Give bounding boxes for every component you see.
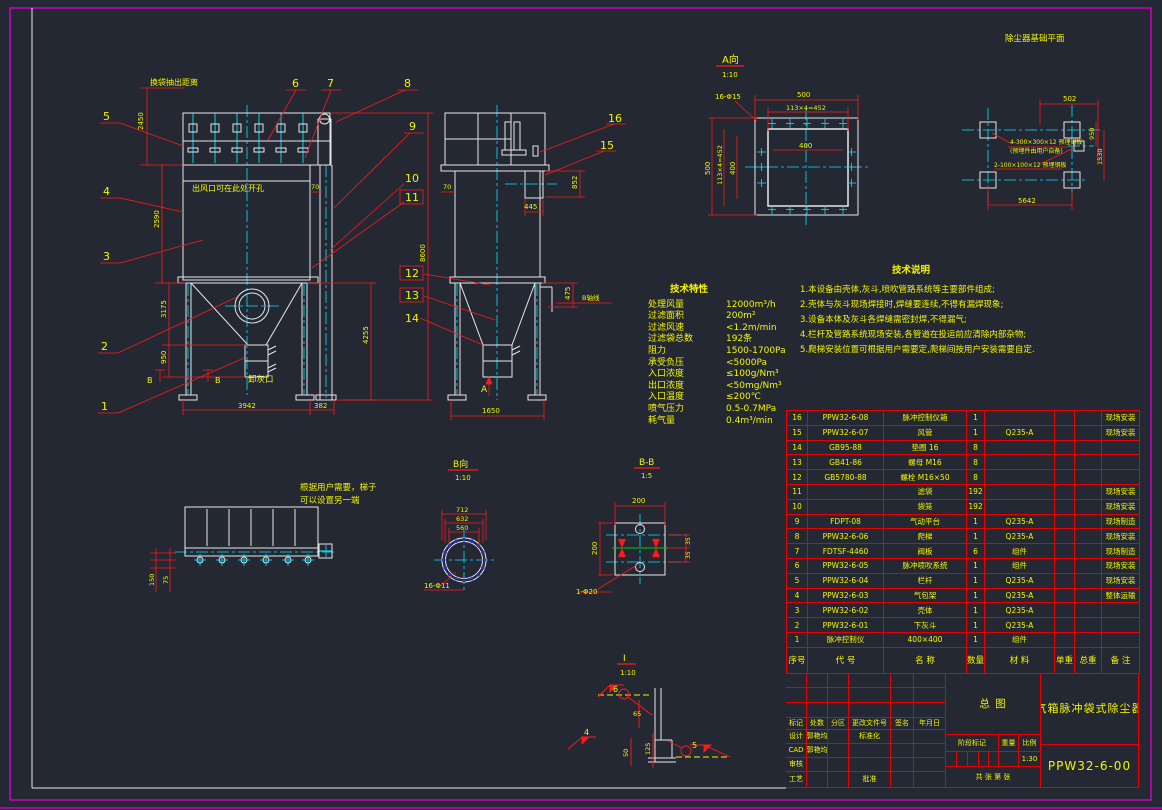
title-block-cell — [807, 703, 828, 718]
bom-cell — [1102, 633, 1140, 648]
bom-cell — [1055, 515, 1075, 530]
bom-cell: 风管 — [884, 426, 967, 441]
side-view — [441, 113, 552, 400]
bom-cell: 9 — [787, 515, 808, 530]
bom-cell — [1102, 455, 1140, 470]
title-block-cell — [828, 744, 849, 758]
bom-cell: 13 — [787, 455, 808, 470]
title-block-stage-box — [957, 752, 968, 767]
title-block-cell — [891, 688, 914, 703]
bom-cell: 1 — [967, 574, 985, 589]
balloon-13: 13 — [405, 289, 419, 302]
weld-scale: 1:10 — [620, 669, 636, 677]
title-block-cell — [914, 730, 946, 744]
bom-cell: 现场安装 — [1102, 485, 1140, 500]
dim-gap-front: 70 — [311, 183, 319, 191]
title-block-cell — [891, 673, 914, 688]
bom-cell: 脉冲喷吹系统 — [884, 559, 967, 574]
spec-value: 200m² — [726, 311, 756, 323]
title-block-scale-label: 比例 — [1019, 735, 1041, 752]
spec-label: 入口温度 — [648, 392, 726, 404]
bom-cell — [1055, 455, 1075, 470]
spec-value: <50mg/Nm³ — [726, 381, 782, 393]
title-block-stage-box — [989, 752, 999, 767]
detail-a-title: A向 — [722, 53, 739, 66]
bom-header-cell: 备 注 — [1102, 648, 1140, 674]
bom-cell — [1102, 603, 1140, 618]
bom-cell — [1055, 603, 1075, 618]
bom-cell — [985, 485, 1055, 500]
plate-scale: 1:5 — [641, 472, 652, 480]
bom-cell: 组件 — [985, 559, 1055, 574]
bom-cell — [1055, 574, 1075, 589]
title-block-cell — [849, 673, 891, 688]
bom-cell: Q235-A — [985, 618, 1055, 633]
bom-cell — [1075, 470, 1102, 485]
bom-row: 7FDTSF-4460阀板6组件现场制造 — [787, 544, 1140, 559]
bom-header-row: 序号代 号名 称数量材 料单重总重备 注 — [787, 648, 1140, 674]
bom-cell — [1055, 544, 1075, 559]
bom-cell: 400×400 — [884, 633, 967, 648]
foundation-note1: 4-300×300×12 预埋钢板 — [1010, 138, 1082, 146]
bom-cell: 整体运输 — [1102, 589, 1140, 604]
bom-cell: 脉冲控制仪 — [808, 633, 884, 648]
bom-row: 3PPW32-6-02壳体1Q235-A — [787, 603, 1140, 618]
bom-table: 16PPW32-6-08脉冲控制仪箱1现场安装15PPW32-6-07风管1Q2… — [786, 410, 1140, 674]
bom-row: 12GB5780-88螺栓 M16×508 — [787, 470, 1140, 485]
spec-label: 耗气量 — [648, 416, 726, 428]
dim-discharge: 950 — [160, 351, 168, 364]
title-block-cell — [849, 744, 891, 758]
bom-cell: 现场安装 — [1102, 529, 1140, 544]
detail-a-view — [755, 118, 858, 215]
section-mark-b1: B — [147, 376, 153, 385]
bom-cell — [1075, 441, 1102, 456]
foundation-950: 950 — [1088, 128, 1096, 140]
bom-cell — [1055, 633, 1075, 648]
title-block-weight-box — [999, 752, 1019, 767]
spec-value: 0.5-0.7MPa — [726, 404, 776, 416]
foundation-502: 502 — [1063, 95, 1076, 103]
bom-cell — [1075, 411, 1102, 426]
spec-label: 喷气压力 — [648, 404, 726, 416]
bom-cell — [1055, 485, 1075, 500]
bom-cell: 1 — [967, 529, 985, 544]
title-block-sheet-note: 共 张 第 张 — [946, 767, 1041, 788]
bom-cell — [1075, 574, 1102, 589]
bom-cell: 4 — [787, 589, 808, 604]
bom-cell: 1 — [967, 633, 985, 648]
title-block-stage-box — [968, 752, 979, 767]
bom-cell: 组件 — [985, 633, 1055, 648]
balloon-9: 9 — [409, 120, 416, 133]
weld-m6: 6 — [613, 685, 618, 694]
tech-note-line: 5.爬梯安装位置可根据用户需要定,爬梯间按用户安装需要自定. — [800, 343, 1145, 358]
bom-cell: 10 — [787, 500, 808, 515]
balloon-15: 15 — [600, 139, 614, 152]
bom-cell: 6 — [787, 559, 808, 574]
detail-a-scale: 1:10 — [722, 71, 738, 79]
tech-note-line: 2.壳体与灰斗现场焊接时,焊缝要连续,不得有漏焊现象; — [800, 298, 1145, 313]
spec-row: 承受负压<5000Pa — [648, 358, 863, 370]
dim-body: 2590 — [153, 210, 161, 228]
foundation-1530: 1530 — [1096, 148, 1104, 165]
title-block-cell: 处数 — [807, 718, 828, 730]
spec-row: 入口浓度≤100g/Nm³ — [648, 369, 863, 381]
bom-cell: 2 — [787, 618, 808, 633]
bom-cell: GB95-88 — [808, 441, 884, 456]
side-axis-note: B轴线 — [582, 293, 600, 302]
title-block-cell: 标记 — [786, 718, 807, 730]
spec-value: 1500-1700Pa — [726, 346, 786, 358]
detail-a-bolts — [757, 119, 856, 214]
spec-label: 过滤风速 — [648, 323, 726, 335]
bom-cell: PPW32-6-05 — [808, 559, 884, 574]
weld-title: I — [623, 654, 626, 664]
bom-row: 15PPW32-6-07风管1Q235-A现场安装 — [787, 426, 1140, 441]
title-block-weight-label: 重量 — [999, 735, 1019, 752]
bom-cell — [1055, 470, 1075, 485]
title-block-cell — [914, 772, 946, 788]
bom-cell — [808, 500, 884, 515]
title-block-cell — [807, 688, 828, 703]
bom-cell: 8 — [967, 470, 985, 485]
bom-cell: 8 — [787, 529, 808, 544]
balloon-16: 16 — [608, 112, 622, 125]
bom-cell — [1075, 544, 1102, 559]
bom-cell: PPW32-6-02 — [808, 603, 884, 618]
title-block-cell — [849, 758, 891, 772]
spec-label: 过滤袋总数 — [648, 334, 726, 346]
plate-hole: 1-Φ20 — [576, 588, 597, 596]
bom-cell: Q235-A — [985, 603, 1055, 618]
bom-cell: PPW32-6-03 — [808, 589, 884, 604]
bom-cell: 垫圈 16 — [884, 441, 967, 456]
bom-cell: 6 — [967, 544, 985, 559]
bom-cell — [985, 455, 1055, 470]
bom-header-cell: 序号 — [787, 648, 808, 674]
title-block-cell — [828, 730, 849, 744]
spec-label: 过滤面积 — [648, 311, 726, 323]
weld-m5: 5 — [692, 741, 697, 750]
bom-header-cell: 名 称 — [884, 648, 967, 674]
title-block-cell — [807, 673, 828, 688]
foundation-5642: 5642 — [1018, 197, 1036, 205]
plate-s1: 35 — [685, 537, 692, 545]
foundation-note3: 2-100×100×12 预埋钢板 — [994, 161, 1066, 169]
front-outlet-note: 出风口可在此处开孔 — [192, 183, 264, 193]
bom-cell — [1102, 618, 1140, 633]
bom-cell: 螺栓 M16×50 — [884, 470, 967, 485]
bom-cell: 现场制造 — [1102, 515, 1140, 530]
bom-cell: 11 — [787, 485, 808, 500]
bom-cell: 1 — [967, 411, 985, 426]
weld-125: 125 — [644, 743, 652, 755]
bom-cell — [1075, 455, 1102, 470]
plan-note1: 根据用户需要，梯子 — [300, 482, 377, 493]
balloon-7: 7 — [327, 77, 334, 90]
detail-a-h: 500 — [704, 162, 712, 175]
bom-cell: 气包架 — [884, 589, 967, 604]
plate-title: B-B — [639, 458, 654, 468]
bom-cell: 14 — [787, 441, 808, 456]
front-view — [178, 113, 336, 400]
title-block-cell — [914, 703, 946, 718]
bom-cell — [1075, 485, 1102, 500]
bom-cell: 现场安装 — [1102, 411, 1140, 426]
cad-sheet: 换袋抽出距离 出风口可在此处开孔 卸灰口 2450 2590 3175 950 … — [0, 0, 1162, 810]
bom-cell: 组件 — [985, 544, 1055, 559]
bom-row: 4PPW32-6-03气包架1Q235-A整体运输 — [787, 589, 1140, 604]
bom-cell: 15 — [787, 426, 808, 441]
title-block-cell — [786, 673, 807, 688]
title-block-cell — [914, 688, 946, 703]
title-block-product-title: 气箱脉冲袋式除尘器 — [1041, 673, 1139, 745]
bom-cell — [985, 441, 1055, 456]
title-block-stage-label: 阶段标记 — [946, 735, 999, 752]
detail-a-w: 500 — [797, 91, 810, 99]
plan-view — [185, 507, 332, 563]
plate-w: 200 — [632, 497, 645, 505]
weld-m4: 4 — [584, 728, 589, 737]
plate-h: 200 — [591, 542, 599, 555]
bom-cell — [1055, 529, 1075, 544]
bom-cell: PPW32-6-06 — [808, 529, 884, 544]
flange-holes: 16-Φ11 — [424, 582, 450, 590]
bom-cell: 3 — [787, 603, 808, 618]
title-block-cell — [828, 772, 849, 788]
tech-note-line: 4.栏杆及管路系统现场安装,各管道在投运前应清除内部杂物; — [800, 328, 1145, 343]
bom-cell — [1075, 618, 1102, 633]
bom-cell: 袋笼 — [884, 500, 967, 515]
spec-value: <1.2m/min — [726, 323, 777, 335]
foundation-title: 除尘器基础平面 — [1005, 33, 1065, 44]
bom-cell — [1055, 441, 1075, 456]
balloon-2: 2 — [101, 340, 108, 353]
plan-d1: 150 — [148, 574, 156, 586]
title-block-cell — [828, 758, 849, 772]
bom-cell: 16 — [787, 411, 808, 426]
title-block-cell — [914, 744, 946, 758]
balloon-10: 10 — [405, 172, 419, 185]
bom-cell — [1055, 618, 1075, 633]
bom-cell: Q235-A — [985, 515, 1055, 530]
title-block-cell — [807, 758, 828, 772]
title-block-cell: 标准化 — [849, 730, 891, 744]
plan-note2: 可以设置另一端 — [300, 495, 360, 506]
title-block-cell — [891, 758, 914, 772]
title-block-drawing-no: PPW32-6-00 — [1041, 745, 1139, 788]
bom-cell — [1075, 589, 1102, 604]
bom-cell: 栏杆 — [884, 574, 967, 589]
spec-label: 处理风量 — [648, 300, 726, 312]
title-block-cell — [828, 673, 849, 688]
bom-cell: 8 — [967, 455, 985, 470]
bom-cell: 1 — [967, 559, 985, 574]
weld-50: 50 — [622, 749, 630, 757]
bom-cell: 1 — [967, 603, 985, 618]
bom-cell — [1055, 559, 1075, 574]
bom-cell: 现场安装 — [1102, 500, 1140, 515]
title-block-stage-box — [979, 752, 989, 767]
tech-note-line: 1.本设备由壳体,灰斗,喷吹管路系统等主要部件组成; — [800, 283, 1145, 298]
spec-label: 入口浓度 — [648, 369, 726, 381]
title-block-cell: 郭艳均 — [807, 744, 828, 758]
bom-cell: 8 — [967, 441, 985, 456]
flange-632: 632 — [456, 515, 468, 523]
bom-cell: 1 — [967, 426, 985, 441]
spec-value: 12000m³/h — [726, 300, 776, 312]
title-block-cell — [849, 703, 891, 718]
bom-cell: 气动平台 — [884, 515, 967, 530]
spec-row: 入口温度≤200℃ — [648, 392, 863, 404]
spec-value: <5000Pa — [726, 358, 767, 370]
bom-header-cell: 代 号 — [808, 648, 884, 674]
title-block-cell: 郭艳均 — [807, 730, 828, 744]
bom-cell: PPW32-6-08 — [808, 411, 884, 426]
flange-712: 712 — [456, 506, 468, 514]
balloon-11: 11 — [405, 191, 419, 204]
dim-side-width: 1650 — [482, 407, 500, 415]
side-view-mark: A — [481, 385, 488, 395]
weld-65: 65 — [633, 710, 641, 718]
bom-row: 8PPW32-6-06爬梯1Q235-A现场安装 — [787, 529, 1140, 544]
bom-cell: 滤袋 — [884, 485, 967, 500]
bom-cell: 壳体 — [884, 603, 967, 618]
spec-value: ≤100g/Nm³ — [726, 369, 779, 381]
bom-row: 1脉冲控制仪400×4001组件 — [787, 633, 1140, 648]
balloon-4: 4 — [103, 185, 110, 198]
front-ash-note: 卸灰口 — [248, 374, 274, 385]
dim-extract: 2450 — [137, 112, 145, 130]
bom-cell: 现场安装 — [1102, 559, 1140, 574]
bom-cell: 下灰斗 — [884, 618, 967, 633]
bom-row: 13GB41-86螺母 M168 — [787, 455, 1140, 470]
detail-a-hsub: 113×4=452 — [716, 145, 724, 185]
bom-cell: 12 — [787, 470, 808, 485]
bom-cell: PPW32-6-07 — [808, 426, 884, 441]
tech-notes-block: 技术说明 1.本设备由壳体,灰斗,喷吹管路系统等主要部件组成;2.壳体与灰斗现场… — [800, 263, 1145, 358]
spec-label: 阻力 — [648, 346, 726, 358]
title-block-cell: 年月日 — [914, 718, 946, 730]
detail-a-hin: 400 — [729, 162, 737, 175]
spec-value: ≤200℃ — [726, 392, 761, 404]
plan-d2: 75 — [162, 576, 170, 584]
title-block: 标记处数分区更改文件号签名年月日设计郭艳均标准化CAD郭艳均审核工艺批准 总 图… — [786, 673, 1139, 788]
bom-cell — [1075, 603, 1102, 618]
title-block-cell — [786, 703, 807, 718]
dim-width: 3942 — [238, 402, 256, 410]
bom-cell — [1055, 589, 1075, 604]
bom-header-cell: 材 料 — [985, 648, 1055, 674]
bom-cell: 现场制造 — [1102, 544, 1140, 559]
bom-cell: Q235-A — [985, 529, 1055, 544]
bom-row: 6PPW32-6-05脉冲喷吹系统1组件现场安装 — [787, 559, 1140, 574]
front-extract-note: 换袋抽出距离 — [150, 77, 198, 87]
title-block-cell — [914, 673, 946, 688]
bom-cell: 1 — [967, 618, 985, 633]
front-valve-centerlines — [193, 113, 303, 163]
bom-cell: GB5780-88 — [808, 470, 884, 485]
bom-cell — [1075, 426, 1102, 441]
bom-cell: GB41-86 — [808, 455, 884, 470]
bom-cell: PPW32-6-01 — [808, 618, 884, 633]
title-block-stage-box — [946, 752, 957, 767]
dim-inlet-h: 852 — [571, 176, 579, 189]
balloon-12: 12 — [405, 267, 419, 280]
balloon-6: 6 — [292, 77, 299, 90]
bom-cell — [985, 411, 1055, 426]
detail-a-holes: 16-Φ15 — [715, 93, 741, 101]
balloon-14: 14 — [405, 312, 419, 325]
bom-cell: 192 — [967, 485, 985, 500]
bom-cell: FDTSF-4460 — [808, 544, 884, 559]
title-block-cell: 更改文件号 — [849, 718, 891, 730]
bom-cell: 1 — [967, 589, 985, 604]
dim-hopper: 3175 — [160, 300, 168, 318]
bom-cell: 爬梯 — [884, 529, 967, 544]
bom-cell — [808, 485, 884, 500]
bom-cell — [1075, 500, 1102, 515]
bom-header-cell: 总重 — [1075, 648, 1102, 674]
title-block-cell — [828, 688, 849, 703]
bom-cell: 现场安装 — [1102, 426, 1140, 441]
bom-cell: 7 — [787, 544, 808, 559]
title-block-cell: 分区 — [828, 718, 849, 730]
bom-cell — [1055, 426, 1075, 441]
dim-total: 8600 — [419, 244, 427, 262]
title-block-cell: 工艺 — [786, 772, 807, 788]
bom-cell — [1102, 441, 1140, 456]
title-block-cell: 签名 — [891, 718, 914, 730]
title-block-general: 总 图 — [946, 673, 1041, 735]
bom-cell — [985, 500, 1055, 515]
bom-cell — [1102, 470, 1140, 485]
bom-cell: Q235-A — [985, 589, 1055, 604]
bom-cell: 螺母 M16 — [884, 455, 967, 470]
spec-value: 192条 — [726, 334, 752, 346]
title-block-cell — [828, 703, 849, 718]
bom-row: 2PPW32-6-01下灰斗1Q235-A — [787, 618, 1140, 633]
bom-cell — [1075, 515, 1102, 530]
balloon-3: 3 — [103, 250, 110, 263]
bom-cell — [1055, 411, 1075, 426]
title-block-cell: 设计 — [786, 730, 807, 744]
dim-axis: 475 — [564, 287, 572, 300]
bom-cell: 192 — [967, 500, 985, 515]
bom-cell: Q235-A — [985, 574, 1055, 589]
bom-cell — [1075, 559, 1102, 574]
bom-cell: 1 — [967, 515, 985, 530]
bom-row: 14GB95-88垫圈 168 — [787, 441, 1140, 456]
balloon-5: 5 — [103, 110, 110, 123]
bom-cell: 脉冲控制仪箱 — [884, 411, 967, 426]
bom-cell: 5 — [787, 574, 808, 589]
title-block-cell: 批准 — [849, 772, 891, 788]
balloon-1: 1 — [101, 400, 108, 413]
title-block-cell — [891, 730, 914, 744]
title-block-cell — [891, 744, 914, 758]
balloon-8: 8 — [404, 77, 411, 90]
dim-gap-side: 70 — [443, 183, 451, 191]
spec-row: 出口浓度<50mg/Nm³ — [648, 381, 863, 393]
bom-cell — [1075, 633, 1102, 648]
title-block-scale-value: 1:30 — [1019, 752, 1041, 767]
title-block-cell: 审核 — [786, 758, 807, 772]
dim-right1: 4255 — [362, 326, 370, 344]
dim-inlet-w: 445 — [524, 203, 537, 211]
flange-scale: 1:10 — [455, 474, 471, 482]
